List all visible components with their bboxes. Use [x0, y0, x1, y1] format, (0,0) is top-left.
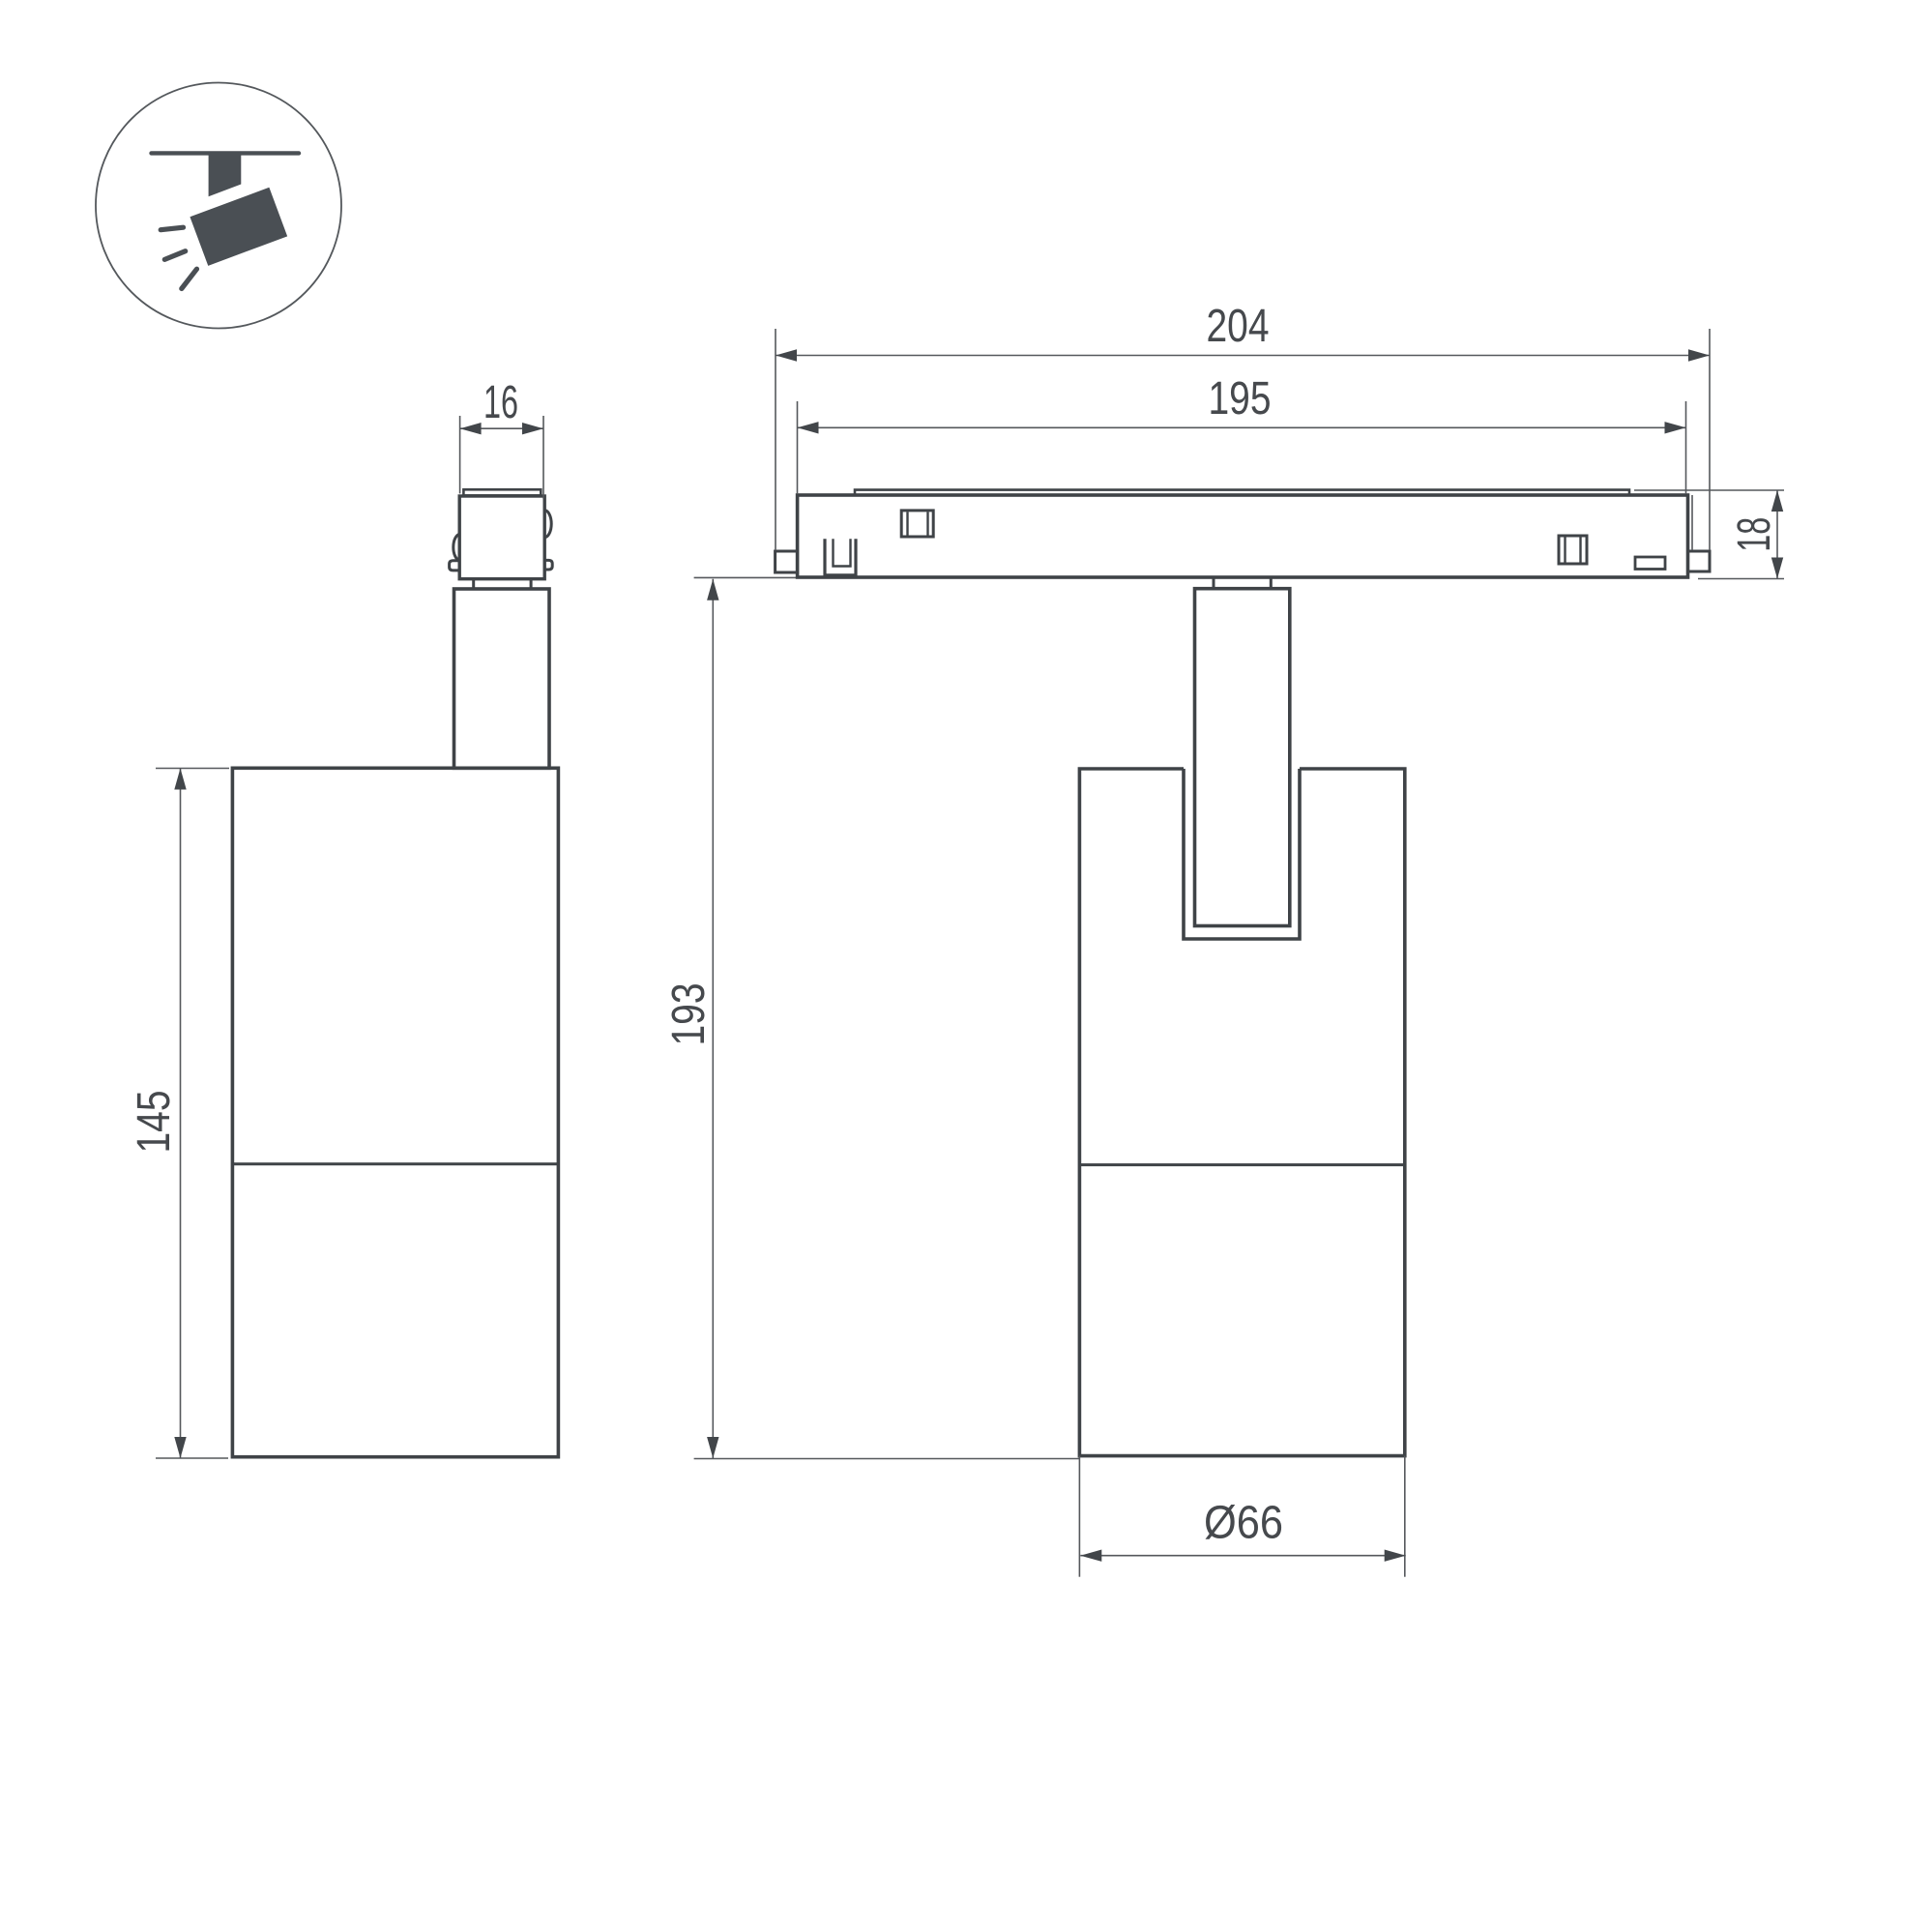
svg-text:Ø66: Ø66 — [1204, 1498, 1283, 1549]
svg-text:145: 145 — [129, 1091, 180, 1154]
svg-text:18: 18 — [1729, 517, 1780, 552]
svg-text:193: 193 — [663, 983, 715, 1046]
svg-text:204: 204 — [1207, 301, 1270, 352]
svg-text:195: 195 — [1209, 373, 1272, 424]
svg-text:16: 16 — [483, 377, 518, 428]
